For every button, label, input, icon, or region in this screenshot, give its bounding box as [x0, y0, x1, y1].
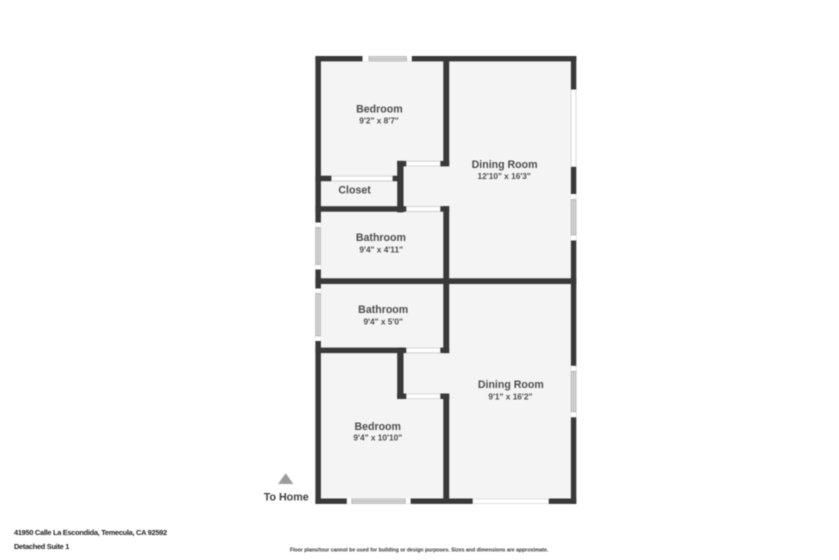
svg-text:9'2" x 8'7": 9'2" x 8'7" [359, 115, 399, 125]
svg-text:9'4" x 5'0": 9'4" x 5'0" [363, 317, 403, 327]
svg-text:Detached Suite 1: Detached Suite 1 [14, 542, 69, 551]
svg-text:12'10" x 16'3": 12'10" x 16'3" [478, 171, 531, 181]
svg-text:Dining Room: Dining Room [478, 379, 544, 391]
svg-text:To Home: To Home [264, 492, 309, 504]
svg-text:9'4" x 10'10": 9'4" x 10'10" [353, 433, 402, 443]
svg-text:Bedroom: Bedroom [354, 421, 401, 433]
svg-text:41950 Calle La Escondida, Teme: 41950 Calle La Escondida, Temecula, CA 9… [14, 528, 167, 537]
svg-text:Closet: Closet [338, 184, 371, 196]
svg-text:Bathroom: Bathroom [356, 232, 406, 244]
svg-text:9'4" x 4'11": 9'4" x 4'11" [359, 245, 403, 255]
svg-text:9'1" x 16'2": 9'1" x 16'2" [488, 392, 532, 402]
svg-text:Dining Room: Dining Room [472, 159, 538, 171]
svg-text:Bedroom: Bedroom [356, 104, 403, 116]
svg-text:Bathroom: Bathroom [358, 304, 408, 316]
svg-text:Floor plans/tour cannot be use: Floor plans/tour cannot be used for buil… [290, 548, 549, 554]
